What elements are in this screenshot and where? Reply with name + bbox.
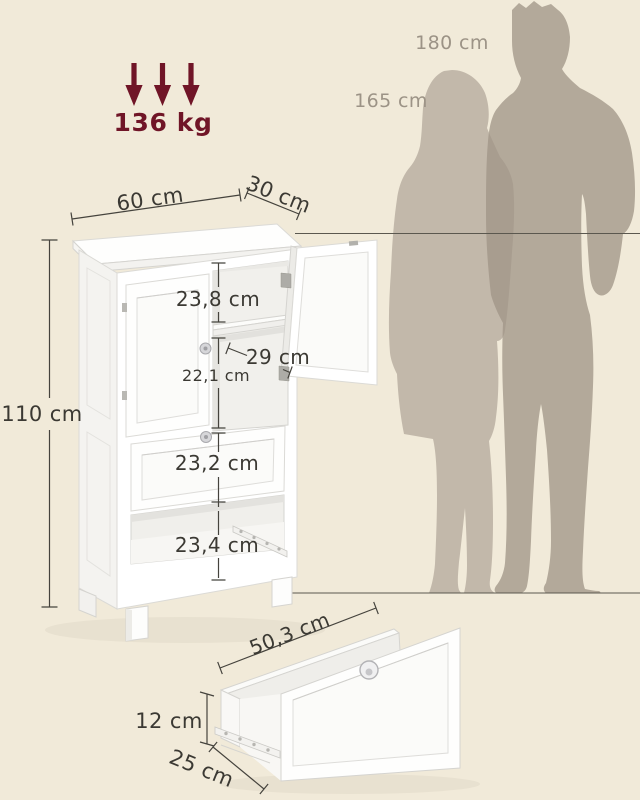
depth-label: 30 cm (243, 171, 315, 218)
drawer-height-dimension: 12 cm (135, 692, 214, 746)
woman-silhouette (389, 70, 514, 593)
door-hinge-top (281, 273, 291, 288)
left-door-hinge-bottom (122, 391, 127, 400)
load-arrow-icon (125, 63, 142, 106)
load-capacity: 136 kg (113, 63, 212, 137)
leg-shading (126, 609, 132, 641)
above-shelf-label: 23,8 cm (176, 287, 260, 311)
cabinet-left-side (79, 250, 117, 609)
tall-person-height-label: 180 cm (415, 32, 489, 54)
load-arrow-icon (154, 63, 171, 106)
door-sticker (349, 241, 358, 246)
below-shelf-label: 22,1 cm (182, 366, 250, 385)
width-dimension: 60 cm (71, 182, 241, 225)
left-door-hinge-top (122, 303, 127, 312)
load-arrow-icons (125, 63, 199, 106)
height-label: 110 cm (1, 402, 82, 426)
load-capacity-label: 136 kg (113, 108, 212, 137)
cabinet-leg-front-right (272, 577, 292, 607)
diagram-canvas: 60 cm 30 cm 110 cm 23,8 cm 29 cm 22,1 cm… (0, 0, 640, 800)
shelf-depth-label: 29 cm (246, 345, 310, 369)
drawer-knob-center (366, 669, 373, 676)
cabinet-drawer-knob-center (204, 435, 208, 439)
depth-dimension: 30 cm (243, 171, 315, 220)
width-label: 60 cm (115, 182, 185, 215)
drawer-front-label: 23,2 cm (175, 451, 259, 475)
height-dimension: 110 cm (1, 240, 82, 607)
open-compartment-label: 23,4 cm (175, 533, 259, 557)
drawer-height-label: 12 cm (135, 709, 202, 733)
left-door-knob-center (204, 347, 208, 351)
drawer-depth-label: 25 cm (166, 745, 237, 793)
drawer-width-label: 50,3 cm (246, 607, 333, 660)
drawer-front-wall-sliver (240, 694, 281, 781)
short-person-height-label: 165 cm (354, 90, 428, 112)
product-dimension-diagram: 60 cm 30 cm 110 cm 23,8 cm 29 cm 22,1 cm… (0, 0, 640, 800)
load-arrow-icon (182, 63, 199, 106)
